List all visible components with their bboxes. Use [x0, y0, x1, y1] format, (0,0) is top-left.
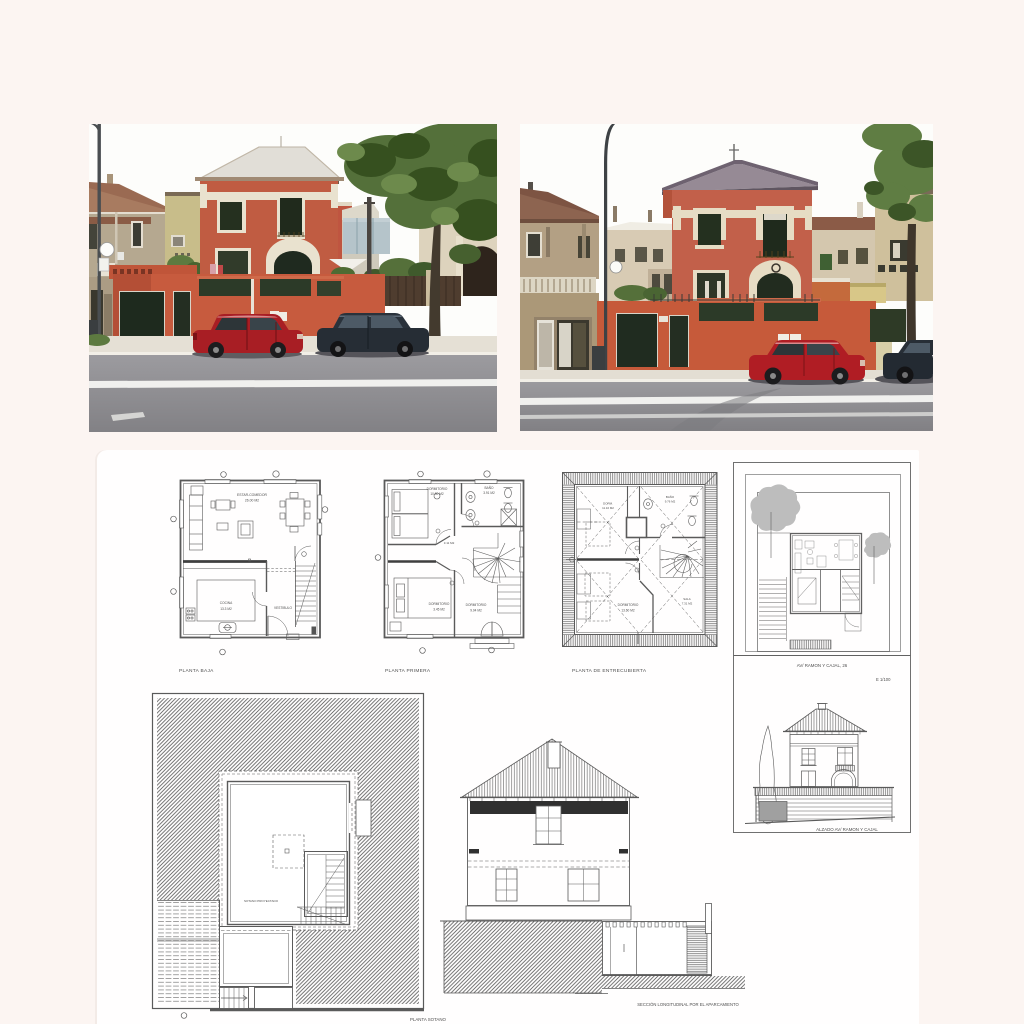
svg-text:SALA: SALA: [683, 597, 690, 601]
svg-text:26.00 M2: 26.00 M2: [245, 499, 259, 503]
svg-text:7.31 M2: 7.31 M2: [682, 602, 693, 606]
svg-text:DORMITORIO: DORMITORIO: [466, 603, 487, 607]
svg-text:SECCIÓN LONGITUDINAL POR EL AP: SECCIÓN LONGITUDINAL POR EL APARCAMIENTO: [637, 1002, 739, 1007]
svg-text:3.45 M2: 3.45 M2: [433, 608, 445, 612]
svg-text:VESTIBULO: VESTIBULO: [274, 606, 292, 610]
svg-text:AV/ RAMON Y CAJAL, 26: AV/ RAMON Y CAJAL, 26: [797, 663, 848, 668]
svg-text:BAÑO: BAÑO: [666, 494, 675, 499]
svg-text:COCINA: COCINA: [220, 601, 233, 605]
svg-text:10.90 M2: 10.90 M2: [430, 492, 444, 496]
svg-text:PLANTA PRIMERA: PLANTA PRIMERA: [385, 668, 431, 674]
svg-text:3.11 M2: 3.11 M2: [444, 541, 455, 545]
svg-text:PLANTA DE ENTRECUBIERTA: PLANTA DE ENTRECUBIERTA: [572, 668, 647, 674]
svg-text:SOTANO PROYECTADO: SOTANO PROYECTADO: [244, 899, 279, 903]
svg-text:PLANTA SOTANO: PLANTA SOTANO: [410, 1017, 447, 1022]
svg-text:DORMITORIO: DORMITORIO: [429, 602, 450, 606]
svg-text:13.60 M2: 13.60 M2: [621, 609, 635, 613]
svg-text:DORM.: DORM.: [603, 502, 613, 506]
svg-text:DORMITORIO: DORMITORIO: [618, 603, 639, 607]
svg-text:13.3 M2: 13.3 M2: [220, 607, 232, 611]
svg-text:DORMITORIO: DORMITORIO: [427, 487, 448, 491]
svg-text:E 1/100: E 1/100: [876, 677, 891, 682]
svg-text:9.04 M2: 9.04 M2: [470, 609, 482, 613]
svg-text:BAÑO: BAÑO: [484, 485, 494, 490]
svg-text:9.76 M2: 9.76 M2: [665, 500, 676, 504]
svg-text:ALZADO AV/ RAMON Y CAJAL: ALZADO AV/ RAMON Y CAJAL: [816, 827, 878, 832]
svg-text:3.91 M2: 3.91 M2: [483, 491, 495, 495]
svg-text:ESTAR-COMEDOR: ESTAR-COMEDOR: [237, 493, 267, 497]
svg-text:11.10 M2: 11.10 M2: [602, 506, 614, 510]
svg-text:PLANTA BAJA: PLANTA BAJA: [179, 668, 214, 674]
